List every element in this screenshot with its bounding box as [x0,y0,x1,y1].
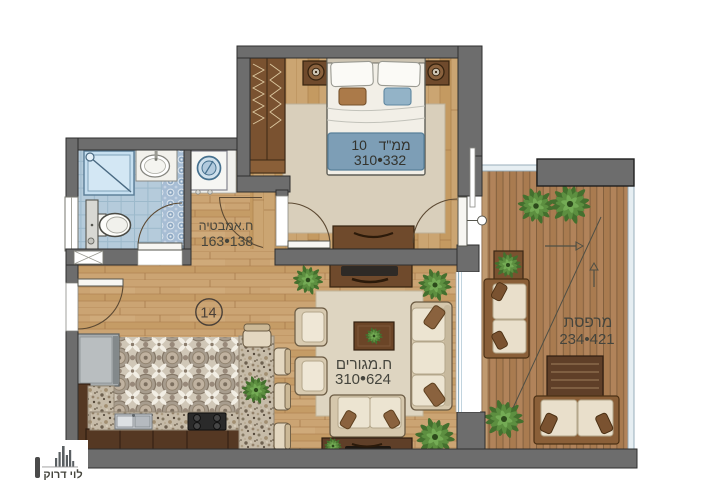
svg-text:234•421: 234•421 [559,331,614,348]
svg-text:163•138: 163•138 [201,233,254,250]
svg-text:ח.אמבטיה: ח.אמבטיה [199,219,254,233]
svg-text:14: 14 [200,306,216,322]
svg-text:מרפסת: מרפסת [564,314,613,331]
svg-text:310•624: 310•624 [335,369,391,388]
svg-text:ממ"ד 10: ממ"ד 10 [351,137,410,153]
svg-text:310•332: 310•332 [354,152,407,169]
svg-text:לוי דרוק: לוי דרוק [43,468,82,480]
